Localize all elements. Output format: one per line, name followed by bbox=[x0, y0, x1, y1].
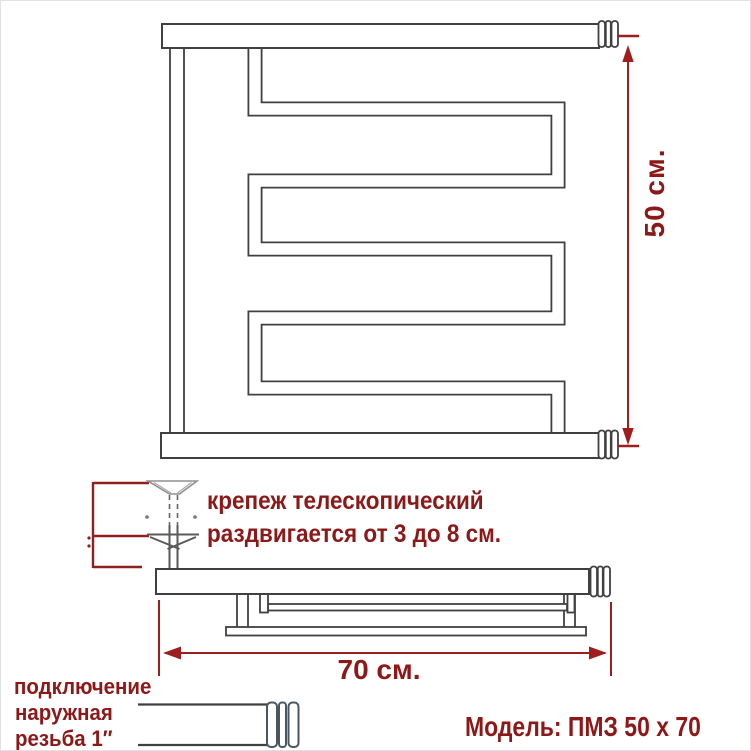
width-dimension-label: 70 см. bbox=[327, 656, 431, 684]
mount-note-line1: крепеж телескопический bbox=[207, 489, 484, 514]
left-rail-tab bbox=[260, 594, 268, 613]
connection-note-line1: подключение bbox=[14, 676, 151, 698]
telescopic-mount-detail bbox=[87, 481, 199, 571]
diagram-canvas bbox=[1, 1, 751, 751]
mount-note-line2: раздвигается от 3 до 8 см. bbox=[207, 522, 501, 547]
mount-hardware bbox=[145, 481, 199, 571]
connection-thread-rings bbox=[267, 703, 299, 748]
technical-drawing-page: 50 см. крепеж телескопический раздвигает… bbox=[0, 0, 751, 751]
model-title: Модель: ПМЗ 50 х 70 bbox=[465, 713, 701, 741]
serpentine-edge-rail bbox=[268, 604, 567, 611]
right-rail-tab bbox=[568, 594, 575, 613]
wall-plate bbox=[226, 627, 586, 636]
top-view-bar bbox=[156, 569, 589, 594]
mount-bracket-lines bbox=[93, 482, 149, 568]
connection-note-line3: резьба 1″ bbox=[15, 728, 113, 750]
top-view-thread-coupling bbox=[591, 567, 611, 597]
height-dimension-label: 50 см. bbox=[628, 141, 682, 245]
top-bar-thread-coupling bbox=[599, 21, 619, 47]
top-collector-bar bbox=[162, 24, 599, 48]
bottom-bar-thread-coupling bbox=[599, 431, 619, 459]
connection-note-line2: наружная bbox=[15, 702, 113, 724]
thread-connection-detail bbox=[138, 703, 299, 748]
bottom-collector-bar bbox=[161, 433, 599, 458]
top-view-drawing bbox=[156, 567, 610, 636]
left-riser-pipe bbox=[170, 46, 184, 435]
front-view-drawing bbox=[161, 21, 618, 459]
